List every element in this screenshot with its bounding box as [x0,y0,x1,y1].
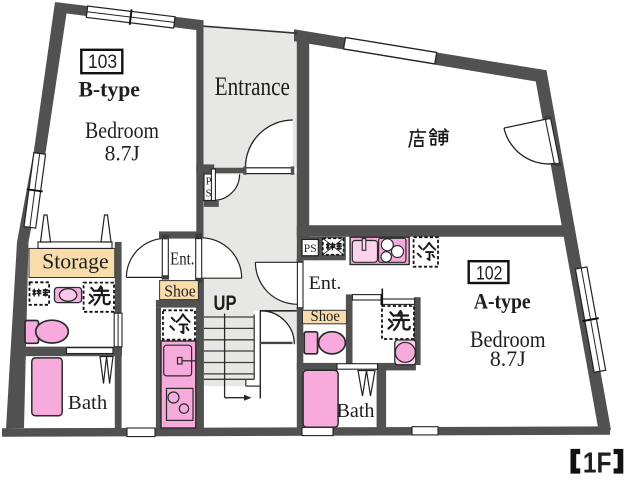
svg-text:Shoe: Shoe [311,308,340,325]
svg-text:S: S [206,189,212,200]
svg-text:Bath: Bath [337,400,375,422]
svg-text:Bath: Bath [68,392,107,414]
svg-text:Ent.: Ent. [309,273,342,294]
svg-text:UP: UP [214,292,237,315]
svg-text:P: P [206,177,212,188]
svg-text:Entrance: Entrance [215,71,290,101]
svg-text:A-type: A-type [474,288,531,313]
svg-text:B-type: B-type [78,77,140,102]
svg-text:8.7J: 8.7J [105,140,141,165]
svg-text:Shoe: Shoe [164,282,196,301]
svg-text:1F: 1F [583,447,612,479]
svg-text:Storage: Storage [42,248,109,273]
svg-text:103: 103 [88,52,117,73]
svg-text:8.7J: 8.7J [490,346,526,371]
svg-text:102: 102 [476,262,503,284]
svg-text:Ent.: Ent. [170,248,194,268]
svg-text:PS: PS [304,243,317,255]
